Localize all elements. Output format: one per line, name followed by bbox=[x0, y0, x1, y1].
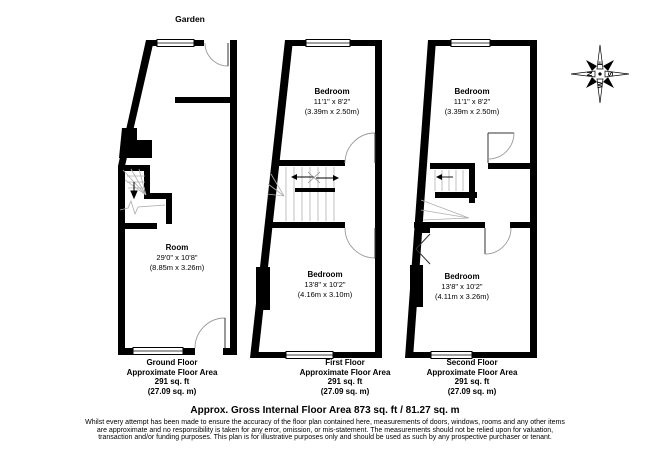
door bbox=[485, 133, 514, 254]
break-line bbox=[120, 201, 165, 214]
room-label-second-bedroom-rear: Bedroom 11'1" x 8'2" (3.39m x 2.50m) bbox=[392, 87, 552, 117]
floor-area-m: (27.09 sq. m) bbox=[92, 387, 252, 397]
caption-ground-floor: Ground Floor Approximate Floor Area 291 … bbox=[92, 358, 252, 396]
compass-north-label: N bbox=[587, 71, 594, 76]
room-name: Bedroom bbox=[245, 270, 405, 280]
stair-direction-arrow bbox=[436, 174, 453, 180]
room-dimensions-imperial: 29'0" x 10'8" bbox=[97, 253, 257, 263]
room-label-first-bedroom-front: Bedroom 13'8" x 10'2" (4.16m x 3.10m) bbox=[245, 270, 405, 300]
floor-area-ft: 291 sq. ft bbox=[392, 377, 552, 387]
gross-area-title: Approx. Gross Internal Floor Area 873 sq… bbox=[0, 405, 650, 416]
floor-area-label: Approximate Floor Area bbox=[392, 368, 552, 378]
compass-south-label: S bbox=[608, 71, 615, 76]
room-dimensions-imperial: 13'8" x 10'2" bbox=[382, 282, 542, 292]
compass-west-label: W bbox=[598, 81, 605, 88]
compass-rose-icon: N E S W bbox=[568, 42, 632, 106]
caption-second-floor: Second Floor Approximate Floor Area 291 … bbox=[392, 358, 552, 396]
floor-name: Second Floor bbox=[392, 358, 552, 368]
floor-area-ft: 291 sq. ft bbox=[92, 377, 252, 387]
ground-floor-plan bbox=[70, 36, 240, 371]
door bbox=[195, 43, 228, 348]
room-dimensions-imperial: 11'1" x 8'2" bbox=[392, 97, 552, 107]
room-dimensions-metric: (8.85m x 3.26m) bbox=[97, 263, 257, 273]
garden-label: Garden bbox=[150, 14, 230, 24]
stair-direction-arrows bbox=[291, 172, 339, 183]
floor-name: Ground Floor bbox=[92, 358, 252, 368]
room-dimensions-metric: (3.39m x 2.50m) bbox=[252, 107, 412, 117]
room-dimensions-metric: (4.11m x 3.26m) bbox=[382, 292, 542, 302]
floor-area-label: Approximate Floor Area bbox=[92, 368, 252, 378]
room-name: Bedroom bbox=[392, 87, 552, 97]
floor-area-m: (27.09 sq. m) bbox=[392, 387, 552, 397]
disclaimer-text: Whilst every attempt has been made to en… bbox=[80, 419, 570, 442]
room-dimensions-imperial: 11'1" x 8'2" bbox=[252, 97, 412, 107]
first-floor-plan bbox=[240, 36, 395, 366]
room-label-first-bedroom-rear: Bedroom 11'1" x 8'2" (3.39m x 2.50m) bbox=[252, 87, 412, 117]
room-name: Bedroom bbox=[252, 87, 412, 97]
stair-landing-edge bbox=[295, 188, 335, 192]
chimney-breast bbox=[119, 128, 152, 158]
room-name: Bedroom bbox=[382, 272, 542, 282]
ground-floor-walls bbox=[118, 40, 237, 355]
compass-east-label: E bbox=[598, 60, 605, 65]
floorplan-page: Garden bbox=[0, 0, 650, 459]
room-label-ground-room: Room 29'0" x 10'8" (8.85m x 3.26m) bbox=[97, 243, 257, 273]
door bbox=[345, 133, 375, 258]
room-label-second-bedroom-front: Bedroom 13'8" x 10'2" (4.11m x 3.26m) bbox=[382, 272, 542, 302]
room-name: Room bbox=[97, 243, 257, 253]
room-dimensions-metric: (3.39m x 2.50m) bbox=[392, 107, 552, 117]
room-dimensions-imperial: 13'8" x 10'2" bbox=[245, 280, 405, 290]
room-dimensions-metric: (4.16m x 3.10m) bbox=[245, 290, 405, 300]
second-floor-plan bbox=[395, 36, 550, 366]
